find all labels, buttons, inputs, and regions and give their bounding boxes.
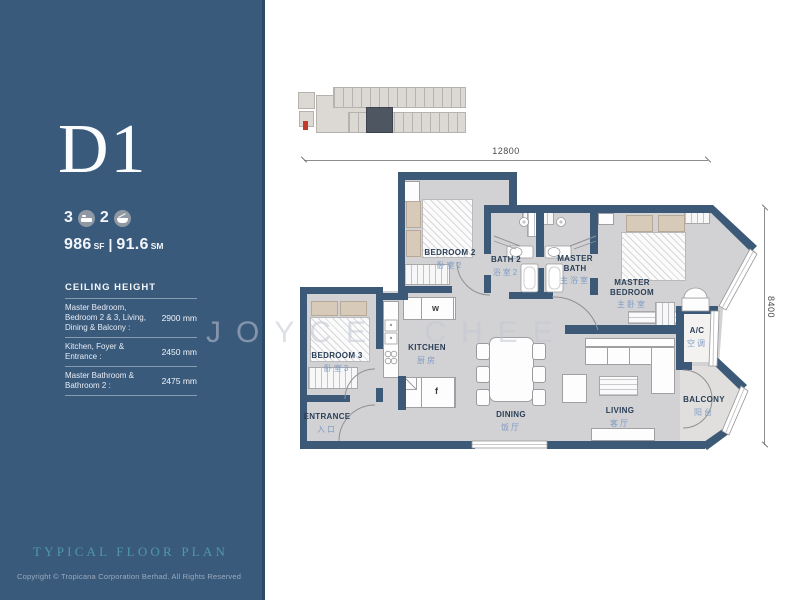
wall — [398, 376, 406, 410]
sidebar-edge-line — [262, 0, 265, 600]
dining-chair — [532, 366, 546, 383]
ceiling-row-label: Master Bedroom, Bedroom 2 & 3, Living, D… — [65, 303, 153, 333]
key-plan-block — [298, 92, 315, 109]
ceiling-height-table: CEILING HEIGHT Master Bedroom, Bedroom 2… — [65, 282, 197, 396]
watermark: JOYCE CHEE — [206, 316, 568, 350]
dimension-line-right — [764, 208, 765, 445]
wall — [383, 293, 408, 300]
room-label-bath2: BATH 2 浴室2 — [472, 255, 540, 278]
closet — [403, 181, 420, 202]
armchair — [562, 374, 587, 403]
dimension-line-top — [304, 160, 708, 161]
wall — [398, 172, 405, 293]
bathroom-count: 2 — [100, 209, 109, 227]
ceiling-row-value: 2450 mm — [162, 347, 197, 357]
wall — [300, 395, 350, 402]
area-sf-unit: SF — [94, 241, 105, 251]
dimension-tick — [762, 441, 768, 447]
room-label-dining: DINING 饭厅 — [476, 410, 546, 433]
dining-chair — [476, 389, 490, 406]
sofa-back — [585, 338, 675, 347]
room-label-balcony: BALCONY 阳台 — [669, 395, 739, 418]
pillow — [340, 301, 367, 316]
wall — [300, 441, 475, 449]
fridge-box — [421, 377, 455, 408]
bath-icon — [114, 210, 131, 227]
key-plan-highlighted-unit — [366, 107, 393, 133]
area-sm-unit: SM — [151, 241, 164, 251]
area-separator: | — [108, 236, 112, 252]
area-sf-value: 986 — [64, 236, 92, 254]
wall — [376, 388, 383, 402]
unit-stats: 3 2 — [64, 209, 131, 227]
wall — [590, 212, 598, 254]
room-label-entrance: ENTRANCE 入口 — [292, 412, 362, 435]
north-indicator — [303, 121, 308, 130]
wall — [484, 205, 712, 213]
pillow — [311, 301, 338, 316]
wall — [565, 325, 679, 334]
fridge-label: f — [435, 386, 438, 396]
dimension-height-label: 8400 — [766, 296, 776, 318]
ceiling-row-value: 2900 mm — [162, 313, 197, 323]
wall — [676, 362, 692, 370]
dimension-tick — [762, 204, 768, 210]
room-label-bedroom3: BEDROOM 3 卧室3 — [297, 351, 377, 374]
wall — [547, 441, 705, 449]
dining-chair — [532, 389, 546, 406]
ceiling-row: Master Bedroom, Bedroom 2 & 3, Living, D… — [65, 298, 197, 337]
ceiling-row-value: 2475 mm — [162, 376, 197, 386]
coffee-table — [599, 376, 638, 396]
ceiling-row-label: Master Bathroom & Bathroom 2 : — [65, 371, 153, 391]
room-label-master-bedroom: MASTER BEDROOM 主卧室 — [597, 278, 667, 310]
key-plan-units-row — [333, 87, 466, 108]
room-label-living: LIVING 客厅 — [585, 406, 655, 429]
bedroom-count: 3 — [64, 209, 73, 227]
wall — [484, 275, 491, 293]
wall — [398, 172, 517, 180]
wall — [300, 287, 383, 294]
copyright-notice: Copyright © Tropicana Corporation Berhad… — [17, 572, 241, 581]
dimension-width-label: 12800 — [456, 146, 556, 156]
ceiling-row: Kitchen, Foyer & Entrance : 2450 mm — [65, 337, 197, 366]
bed-mattress — [621, 232, 686, 281]
dining-chair — [476, 366, 490, 383]
area-sm-value: 91.6 — [116, 236, 148, 254]
sofa-chaise — [651, 347, 675, 394]
tv-console — [591, 428, 655, 441]
unit-area: 986 SF | 91.6 SM — [64, 236, 168, 254]
bed-icon — [78, 210, 95, 227]
ceiling-row: Master Bathroom & Bathroom 2 : 2475 mm — [65, 366, 197, 396]
wall — [509, 292, 553, 299]
ceiling-row-label: Kitchen, Foyer & Entrance : — [65, 342, 153, 362]
pillow — [626, 215, 653, 232]
floor-plan-page: D1 3 2 986 SF | 91.6 SM CEILING HEIGHT M… — [0, 0, 800, 600]
wardrobe — [684, 212, 710, 224]
nightstand — [598, 213, 614, 225]
sofa-seats — [585, 347, 652, 365]
room-label-ac: A/C 空调 — [672, 326, 722, 349]
ceiling-height-title: CEILING HEIGHT — [65, 282, 197, 293]
unit-name: D1 — [58, 110, 148, 190]
wall — [536, 212, 544, 257]
plan-type-title: TYPICAL FLOOR PLAN — [33, 544, 228, 560]
washer-label: w — [432, 303, 439, 313]
room-label-master-bath: MASTER BATH 主浴室 — [546, 254, 604, 286]
wall — [398, 286, 452, 293]
pillow — [658, 215, 685, 232]
pillow — [406, 201, 421, 228]
